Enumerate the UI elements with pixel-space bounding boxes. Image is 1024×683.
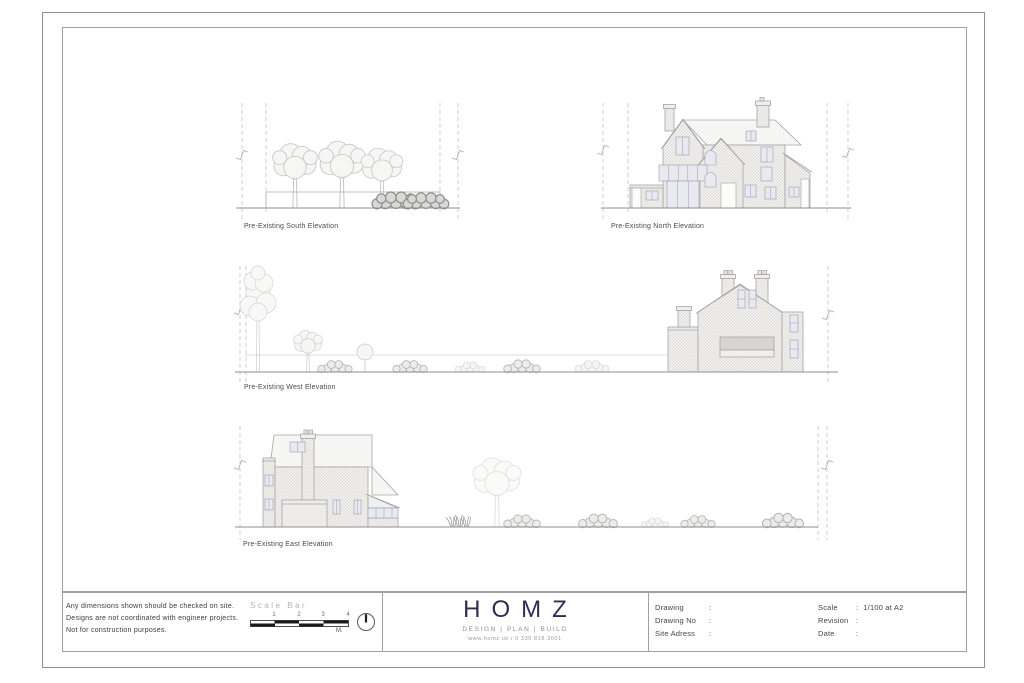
planting-group [446, 458, 804, 528]
disclaimer-line-1: Any dimensions shown should be checked o… [66, 601, 238, 613]
brand-tagline: DESIGN | PLAN | BUILD [383, 626, 647, 633]
revision-field: Revision: [818, 616, 863, 625]
colon: : [856, 629, 858, 638]
trees-group [240, 266, 373, 372]
homz-logo: HOMZ [383, 596, 647, 624]
scale-bar-graphic [250, 620, 350, 627]
disclaimer-notes: Any dimensions shown should be checked o… [66, 601, 238, 637]
break-mark-icon [236, 151, 248, 160]
scale-bar-label: Scale Bar [250, 601, 307, 610]
drawing-label: Drawing [655, 603, 709, 612]
site-address-label: Site Adress [655, 629, 709, 638]
south-elevation-drawing [230, 95, 465, 235]
colon: : [856, 603, 858, 612]
north-arrow-icon [355, 611, 377, 633]
south-elevation-label: Pre-Existing South Elevation [244, 223, 338, 230]
disclaimer-line-2: Designs are not coordinated with enginee… [66, 613, 238, 625]
brand-block: HOMZ DESIGN | PLAN | BUILD www.homz.uk /… [383, 596, 647, 642]
scale-bar-tick-3: 3 [321, 612, 324, 618]
west-elevation-label: Pre-Existing West Elevation [244, 384, 336, 391]
scale-bar-tick-4: 4 [346, 612, 349, 618]
break-mark-icon [842, 149, 854, 158]
east-elevation-label: Pre-Existing East Elevation [243, 541, 333, 548]
east-elevation-drawing [230, 420, 845, 555]
house-west [668, 271, 803, 373]
north-elevation-label: Pre-Existing North Elevation [611, 223, 704, 230]
colon: : [856, 616, 858, 625]
drawing-sheet: Pre-Existing South Elevation Pre-Existin… [0, 0, 1024, 683]
scale-bar-tick-1: 1 [272, 612, 275, 618]
revision-label: Revision [818, 616, 856, 625]
disclaimer-line-3: Not for construction purposes. [66, 625, 238, 637]
title-block-divider [648, 593, 649, 651]
drawing-field: Drawing: [655, 603, 716, 612]
hedge-group [372, 192, 449, 209]
north-elevation-drawing [595, 95, 855, 235]
scale-bar-tick-2: 2 [297, 612, 300, 618]
date-field: Date: [818, 629, 863, 638]
west-elevation-drawing [230, 260, 845, 395]
site-address-field: Site Adress: [655, 629, 716, 638]
scale-field: Scale:1/100 at A2 [818, 603, 903, 612]
scale-label: Scale [818, 603, 856, 612]
scale-value: 1/100 at A2 [863, 603, 903, 612]
drawing-no-label: Drawing No [655, 616, 709, 625]
brand-contact: www.homz.uk / 0 330 818 3001 [383, 636, 647, 642]
drawing-no-field: Drawing No: [655, 616, 716, 625]
colon: : [709, 616, 711, 625]
bushes-group [318, 360, 609, 373]
break-mark-icon [452, 151, 464, 160]
date-label: Date [818, 629, 856, 638]
scale-bar-unit: M. [336, 628, 343, 634]
colon: : [709, 603, 711, 612]
colon: : [709, 629, 711, 638]
